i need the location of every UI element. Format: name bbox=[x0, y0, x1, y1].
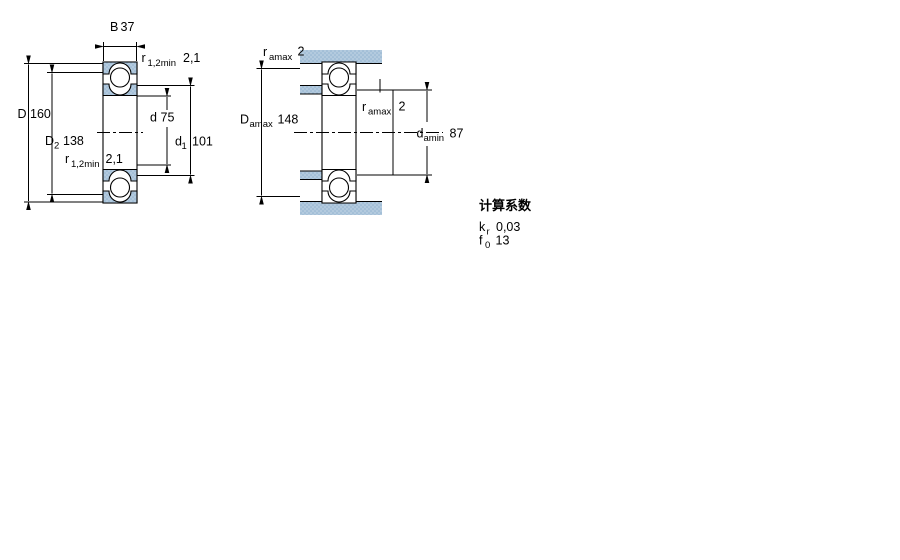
r-value: 2 bbox=[298, 45, 305, 59]
r-symbol: r bbox=[362, 100, 366, 114]
r-symbol: r bbox=[263, 45, 267, 59]
r-symbol: r bbox=[65, 152, 69, 166]
dim-label-d1-sub: 1 bbox=[182, 141, 187, 152]
factor-value: 0,03 bbox=[496, 220, 520, 234]
dim-label-D: D bbox=[18, 107, 27, 121]
dim-label-damin: d bbox=[417, 127, 424, 141]
dim-value-damin: 87 bbox=[450, 127, 464, 141]
factor-symbol: k bbox=[479, 220, 486, 234]
dim-value-d: 75 bbox=[161, 111, 175, 125]
factor-subscript: r bbox=[487, 227, 490, 238]
left-drawing: B 37 D 160 D 2 138 d 75 bbox=[18, 20, 213, 203]
label-r12min-top: r 1,2min 2,1 bbox=[142, 51, 201, 69]
dim-D: D 160 bbox=[18, 64, 104, 203]
dim-value-D: 160 bbox=[30, 107, 51, 121]
factor-value: 13 bbox=[496, 234, 510, 248]
factor-symbol: f bbox=[479, 234, 483, 248]
r-subscript: amax bbox=[269, 52, 292, 63]
dim-d: d 75 bbox=[137, 96, 174, 165]
dim-d1: d 1 101 bbox=[137, 86, 213, 176]
dim-label-Damax: D bbox=[240, 113, 249, 127]
dim-label-d: d bbox=[150, 111, 157, 125]
dim-Damax: D amax 148 bbox=[240, 69, 300, 197]
calc-row-f0: f 0 13 bbox=[479, 234, 509, 252]
r-subscript: 1,2min bbox=[71, 159, 100, 170]
dim-value-B: 37 bbox=[121, 20, 135, 34]
r-subscript: 1,2min bbox=[148, 58, 177, 69]
r-subscript: amax bbox=[368, 107, 391, 118]
calc-factors-title: 计算系数 bbox=[479, 198, 532, 213]
dim-label-D2-sub: 2 bbox=[54, 141, 59, 152]
dim-value-Damax: 148 bbox=[278, 113, 299, 127]
bearing-drawing-page: B 37 D 160 D 2 138 d 75 bbox=[0, 0, 900, 560]
dim-value-D2: 138 bbox=[63, 134, 84, 148]
dim-B: B 37 bbox=[104, 20, 137, 61]
r-symbol: r bbox=[142, 51, 146, 65]
r-value: 2,1 bbox=[183, 51, 200, 65]
dim-label-D2: D bbox=[45, 134, 54, 148]
label-ramax-top: r amax 2 bbox=[263, 45, 305, 64]
dim-label-Damax-sub: amax bbox=[250, 119, 273, 130]
right-drawing: r amax 2 D amax 148 r amax 2 d amin bbox=[240, 45, 463, 216]
r-value: 2,1 bbox=[106, 152, 123, 166]
dim-label-damin-sub: amin bbox=[424, 133, 445, 144]
dim-label-B: B bbox=[110, 20, 118, 34]
calculation-factors: 计算系数 k r 0,03 f 0 13 bbox=[479, 198, 532, 251]
dim-value-d1: 101 bbox=[192, 135, 213, 149]
dim-D2: D 2 138 bbox=[45, 73, 103, 195]
bearing-diagram: B 37 D 160 D 2 138 d 75 bbox=[0, 0, 900, 560]
r-value: 2 bbox=[399, 100, 406, 114]
label-ramax-mid: r amax 2 bbox=[362, 79, 406, 118]
factor-subscript: 0 bbox=[485, 240, 490, 251]
